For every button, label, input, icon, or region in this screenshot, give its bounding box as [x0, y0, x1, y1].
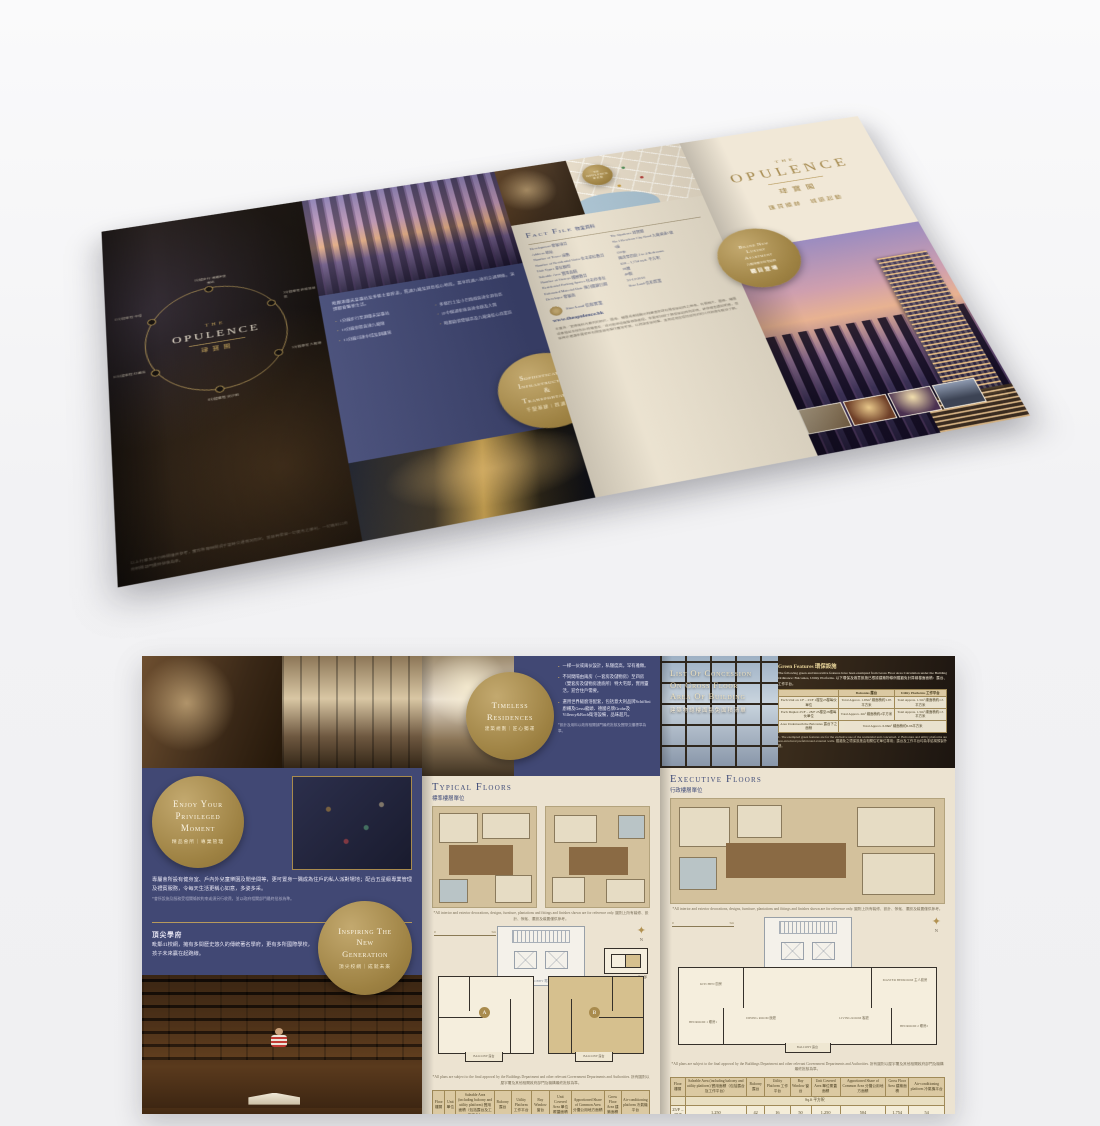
travel-time-label: 8分鐘車程 尖沙咀 [205, 393, 243, 404]
col-header: Unit Covered Area 單位覆蓋面積 [811, 1077, 840, 1096]
col-header: Floor 樓層 [433, 1091, 445, 1114]
bedroom1-label: BEDROOM 1 睡房1 [683, 1020, 723, 1024]
col-header: Apportioned Share of Common Area 分攤公用地方面… [571, 1091, 604, 1114]
scale-bar: 0 5m [672, 921, 734, 927]
bullet-item: 選用世界級廚浴配套，包括意大利品牌Schiffini廚櫃及Gessi龍頭、德國名… [558, 699, 652, 720]
row-label: Area Underneath the Balconies 露台下之面積 [779, 720, 839, 732]
cell-value: Total Approx. 2m² 總面積約2平方米 [839, 709, 894, 721]
executive-floors-title-cn: 行政樓層單位 [670, 786, 945, 794]
table-row: Area Underneath the Balconies 露台下之面積 Tot… [779, 720, 947, 732]
executive-render-plan [670, 798, 945, 904]
col-header: Floor 樓層 [671, 1077, 686, 1096]
desk [142, 1108, 422, 1114]
col-header: Utility Platforms 工作平台 [894, 689, 946, 696]
green-features-block: Green Features 環保設施 The following green … [774, 656, 955, 768]
concession-title: List Of Concession [670, 668, 774, 680]
cell-value: 16 [765, 1105, 790, 1114]
green-features-title: Green Features 環保設施 [778, 662, 947, 670]
col-header: Air-conditioning platform 冷氣機平台 [909, 1077, 945, 1096]
cell-floor: 25/F – 28/F [671, 1105, 686, 1114]
timeless-residences-badge: Timeless Residences 建築規劃｜匠心獨運 [466, 672, 554, 760]
unit-b-outline: B BALCONY 露台 [548, 976, 644, 1054]
col-header: Saleable Area (including balcony and uti… [685, 1077, 746, 1096]
bedroom2-label: BEDROOM 2 睡房2 [894, 1024, 934, 1028]
balcony-label: BALCONY 露台 [465, 1052, 503, 1062]
map-location-badge: THE OPULENCE 珒寶閣 [579, 163, 616, 187]
row-label: Each Duplex 25/F – 28/F 25樓至28樓每伙單位 [779, 709, 839, 721]
interior-thumbnail [798, 402, 853, 434]
scale-five: 5m [492, 930, 496, 934]
cell-value: Total Approx. 1.5m² 總面積約1.5平方米 [894, 709, 946, 721]
col-header: Unit 單位 [445, 1091, 456, 1114]
badge-line-cn: 頂尖校網｜成就未來 [339, 963, 391, 970]
cell-value: 42 [747, 1105, 765, 1114]
executive-floors-title: Executive Floors [670, 774, 945, 785]
executive-unit-outline: KITCHEN 廚房 DINING ROOM 飯廳 LIVING ROOM 客廳… [678, 967, 937, 1045]
north-label: N [932, 928, 941, 933]
bullet-column-right: 多條巴士及小巴路線直達全港各區 沙中線通車後直達金鐘及大圍 毗鄰啟德發展區及九龍… [434, 290, 519, 331]
col-header: Balcony 露台 [494, 1091, 511, 1114]
lift-shaft [812, 942, 835, 960]
concession-section: List Of Concession On Gross Floor Area O… [660, 656, 955, 768]
green-features-intro: The following green and innovative featu… [778, 671, 947, 687]
brand-cn: 珒寶閣 [777, 181, 821, 196]
badge-line: Enjoy Your [173, 799, 223, 811]
cell-value: Total Approx. 1.5m² 總面積約1.5平方米 [894, 697, 946, 709]
concession-title-cn: 建築物總樓面豁免面積清單 [670, 706, 774, 714]
map-marker-icon [621, 166, 625, 169]
mockup-scene: THE OPULENCE 珒寶閣 1分鐘步行 港鐵宋皇臺站 3分鐘車程 啟德發展… [0, 0, 1100, 1126]
lobby-photo [282, 656, 422, 768]
badge-line-cn: 建築規劃｜匠心獨運 [485, 726, 535, 732]
balcony-label: BALCONY 露台 [785, 1043, 831, 1053]
badge-line: Generation [342, 949, 388, 960]
kitchen-label: KITCHEN 廚房 [685, 982, 737, 986]
unit-a-outline: A BALCONY 露台 [438, 976, 534, 1054]
badge-line: New [356, 937, 373, 948]
badge-line: Moment [181, 823, 215, 835]
badge-line-cn: 精品會所｜專業管理 [172, 838, 224, 845]
col-header: Bay Window 窗台 [531, 1091, 549, 1114]
back-cover-fine-print: 以上行車及步行時間僅供參考，實際所需時間視乎當時交通情況而定。發展商保留一切更改… [130, 520, 349, 573]
badge-line: Privileged [176, 811, 221, 823]
top-brochure-mockup: THE OPULENCE 珒寶閣 1分鐘步行 港鐵宋皇臺站 3分鐘車程 啟德發展… [102, 116, 1031, 587]
concession-title: Area Of Building [670, 691, 774, 703]
developer-seal-icon [548, 305, 563, 316]
unit-a-badge: A [479, 1007, 490, 1018]
render-disclaimer: *All interior and exterior decorations, … [670, 907, 945, 913]
unit-a-render-plan [432, 806, 537, 908]
travel-time-label: 15分鐘車程 中環 [106, 314, 142, 324]
table-row: Each Duplex 25/F – 28/F 25樓至28樓每伙單位 Tota… [779, 709, 947, 721]
clubhouse-section: Enjoy Your Privileged Moment 精品會所｜專業管理 專… [142, 768, 422, 918]
col-header: Unit Covered Area 單位覆蓋面積 [549, 1091, 571, 1114]
render-disclaimer: *All interior and exterior decorations, … [432, 911, 650, 922]
green-features-table: Balconies 露台 Utility Platforms 工作平台 Each… [778, 689, 947, 733]
typical-floors-page: 一梯一伙或兩伙設計，私隱度高，罕有雅緻。 不同間隔由兩房（一套房及儲物房）至四房… [422, 656, 660, 1114]
executive-area-table: Floor 樓層 Saleable Area (including balcon… [670, 1077, 945, 1114]
travel-time-label: 10分鐘車程 紅磡站 [108, 371, 146, 381]
bottom-brochure-spread: Enjoy Your Privileged Moment 精品會所｜專業管理 專… [142, 656, 955, 1114]
clubhouse-paragraph: 專屬會所設有健身室、戶內外兒童樂園及閒坐間等，更可置身一隅成為住戶的私人派對場地… [152, 876, 412, 894]
enjoy-moment-badge: Enjoy Your Privileged Moment 精品會所｜專業管理 [152, 776, 244, 868]
child-figure [271, 1035, 287, 1047]
scale-bar: 0 5m [434, 930, 496, 936]
compass-north-icon: ✦ N [637, 926, 646, 942]
concession-title: On Gross Floor [670, 680, 774, 692]
green-features-notes: 1. The exempted green features are for t… [778, 735, 947, 749]
bullet-item: 不同間隔由兩房（一套房及儲物房）至四房（雙套房及儲物房連廁所）特大宅邸，實用靈活… [558, 674, 652, 695]
lift-shaft [514, 951, 537, 969]
timeless-residences-section: 一梯一伙或兩伙設計，私隱度高，罕有雅緻。 不同間隔由兩房（一套房及儲物房）至四房… [422, 656, 660, 776]
executive-floors-heading: Executive Floors 行政樓層單位 [670, 774, 945, 794]
badge-line: Residences [487, 712, 533, 723]
executive-floors-page: List Of Concession On Gross Floor Area O… [660, 656, 955, 1114]
concession-title-block: List Of Concession On Gross Floor Area O… [660, 656, 774, 768]
cell-value: 1,250 [685, 1105, 746, 1114]
fact-file-title-cn: 物業資料 [575, 224, 596, 231]
ring-brand-logo: THE OPULENCE 珒寶閣 [143, 277, 295, 401]
staircase [779, 921, 837, 934]
library-study-photo [142, 975, 422, 1114]
row-label: Each Unit on 1/F – 23/F 1樓至23樓每伙單位 [779, 697, 839, 709]
col-header: Bay Window 窗台 [790, 1077, 811, 1096]
location-ring-diagram: THE OPULENCE 珒寶閣 1分鐘步行 港鐵宋皇臺站 3分鐘車程 啟德發展… [141, 276, 295, 401]
open-book [248, 1093, 300, 1105]
typical-floor-line-plan: 0 5m ✦ N BALCONY PART PLAN 露台部分圖則 [432, 926, 650, 1072]
cover-tagline: 匯賢顯赫 城脈起動 [768, 193, 845, 211]
scale-zero: 0 [672, 921, 674, 925]
map-marker-icon [617, 184, 621, 187]
inset-plan-box [604, 948, 648, 974]
badge-line: Timeless [492, 700, 529, 711]
clubhouse-plan-image [292, 776, 412, 870]
cell-value: Total Approx. 6.96m² 總面積約6.96平方米 [839, 720, 947, 732]
scale-zero: 0 [434, 930, 436, 934]
bullet-item: 一梯一伙或兩伙設計，私隱度高，罕有雅緻。 [558, 663, 652, 670]
table-row: Each Unit on 1/F – 23/F 1樓至23樓每伙單位 Total… [779, 697, 947, 709]
approval-disclaimer: *All plans are subject to the final appr… [670, 1062, 945, 1073]
col-header: Utility Platform 工作平台 [511, 1091, 531, 1114]
living-room-photo [142, 656, 282, 768]
living-room-label: LIVING ROOM 客廳 [824, 1016, 884, 1020]
col-header: Gross Floor Area 建築面積 [604, 1091, 621, 1114]
cell-value: 504 [840, 1105, 885, 1114]
empty-cell [671, 1096, 686, 1105]
typical-floors-heading: Typical Floors 標準樓層單位 [432, 782, 650, 802]
cell-value: 54 [909, 1105, 945, 1114]
dining-room-label: DINING ROOM 飯廳 [731, 1016, 791, 1020]
typical-area-table: Floor 樓層 Unit 單位 Saleable Area (includin… [432, 1090, 650, 1114]
north-label: N [637, 937, 646, 942]
unit-of-measure: Sq.ft 平方呎 [685, 1096, 944, 1105]
col-header: Balcony 露台 [747, 1077, 765, 1096]
schools-paragraph: 毗鄰41校網，擁有多間歷史悠久的傳統著名學府，更有多所國際學校，孩子未來贏在起跑… [152, 941, 313, 959]
master-bedroom-label: MASTER BEDROOM 主人套房 [876, 978, 934, 982]
scale-five: 5m [730, 921, 734, 925]
table-row: 25/F – 28/F 1,250 42 16 50 1,250 504 1,7… [671, 1105, 945, 1114]
typical-floors-title: Typical Floors [432, 782, 650, 793]
timeless-footnote: *設計及用料以政府相關部門最終批核及實際交樓標準為準。 [558, 723, 652, 734]
cell-value: 50 [790, 1105, 811, 1114]
unit-b-render-plan [545, 806, 650, 908]
map-marker-icon [639, 176, 643, 179]
col-header: Utility Platform 工作平台 [765, 1077, 790, 1096]
col-header: Balconies 露台 [839, 689, 894, 696]
schools-section: 頂尖學府 毗鄰41校網，擁有多間歷史悠久的傳統著名學府，更有多所國際學校，孩子未… [142, 927, 422, 975]
lift-shaft [781, 942, 804, 960]
executive-floor-line-plan: 0 5m ✦ N LIFT LOBBY 電梯大堂 [670, 917, 945, 1059]
badge-line: Inspiring The [338, 926, 392, 937]
cell-value: 1,754 [886, 1105, 909, 1114]
compass-north-icon: ✦ N [932, 917, 941, 933]
balcony-label: BALCONY 露台 [575, 1052, 613, 1062]
typical-floors-title-cn: 標準樓層單位 [432, 794, 650, 802]
lift-shaft [545, 951, 568, 969]
col-header: Air-conditioning platform 冷氣機平台 [621, 1091, 649, 1114]
cell-value: 1,250 [811, 1105, 840, 1114]
approval-disclaimer: *All plans are subject to the final appr… [432, 1075, 650, 1086]
brand-cn: 珒寶閣 [593, 176, 604, 180]
empty-cell [779, 689, 839, 696]
lifestyle-page: Enjoy Your Privileged Moment 精品會所｜專業管理 專… [142, 656, 422, 1114]
cell-value: Total Approx. 1.95m² 總面積約1.95平方米 [839, 697, 894, 709]
bullet-column-left: 1分鐘步行至港鐵宋皇臺站 10分鐘車程直達九龍塘 15分鐘可達中環及銅鑼灣 [335, 304, 435, 348]
staircase [512, 930, 570, 943]
travel-time-label: 3分鐘車程 啟德發展區 [283, 286, 319, 299]
developer-name: Sino Land 信和置業 [565, 301, 603, 311]
col-header: Saleable Area (including balcony and uti… [456, 1091, 495, 1114]
inspiring-generation-badge: Inspiring The New Generation 頂尖校網｜成就未來 [318, 901, 412, 995]
travel-time-label: 5分鐘車程 九龍塘 [292, 340, 329, 350]
col-header: Apportioned Share of Common Area 分攤公用地方面… [840, 1077, 885, 1096]
col-header: Gross Floor Area 建築面積 [886, 1077, 909, 1096]
